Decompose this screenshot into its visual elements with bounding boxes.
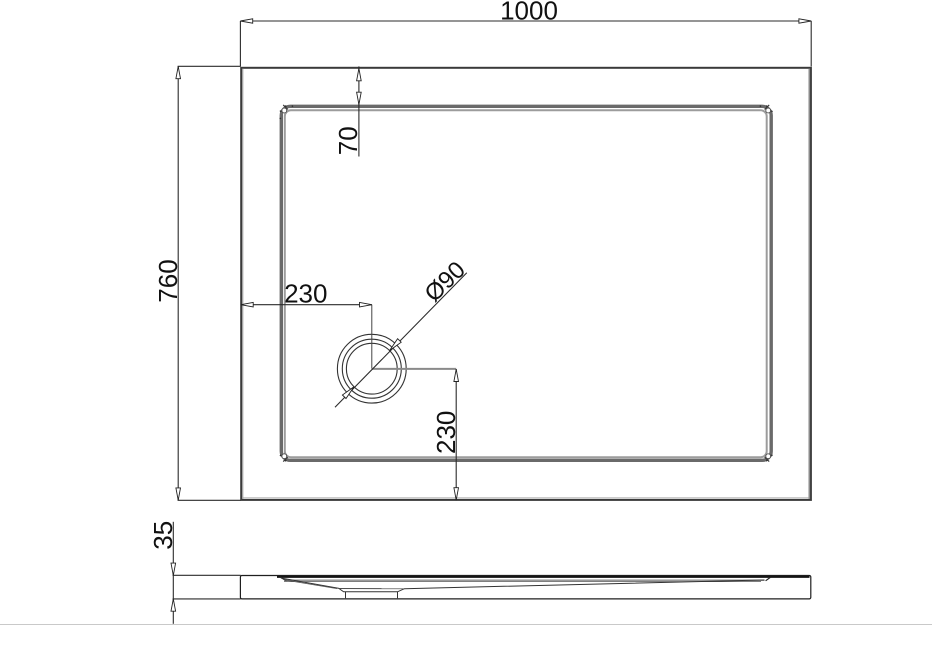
svg-text:230: 230	[284, 278, 327, 308]
svg-text:35: 35	[148, 521, 178, 550]
svg-text:1000: 1000	[500, 0, 558, 26]
svg-text:70: 70	[333, 126, 363, 155]
svg-text:230: 230	[431, 411, 461, 454]
svg-text:760: 760	[153, 259, 183, 302]
